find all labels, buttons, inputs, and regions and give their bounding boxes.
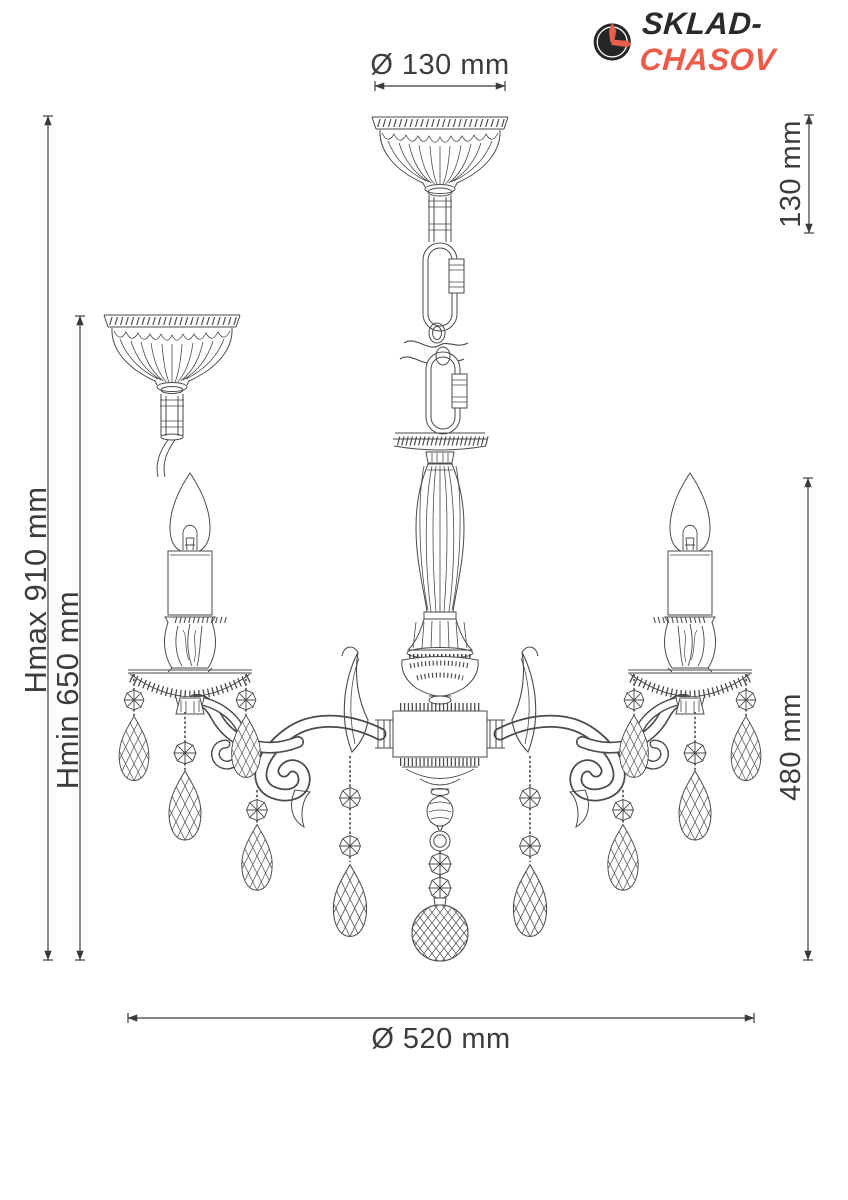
dimension-label-hmin: Hmin 650 mm — [50, 580, 86, 800]
dimension-label-fixture-height: 480 mm — [773, 672, 809, 822]
dim-canopy-diameter — [375, 81, 505, 91]
dimension-label-canopy-diameter: Ø 130 mm — [340, 48, 540, 82]
right-arm-assembly — [482, 473, 789, 939]
dimension-label-canopy-height: 130 mm — [774, 99, 808, 249]
main-canopy — [372, 117, 508, 242]
dimension-label-fixture-diameter: Ø 520 mm — [341, 1022, 541, 1056]
chandelier-technical-drawing — [0, 0, 848, 1200]
detached-canopy — [104, 315, 240, 477]
left-arm-assembly — [91, 473, 398, 939]
hanging-chain — [400, 243, 468, 434]
central-column — [375, 433, 505, 965]
dimension-label-hmax: Hmax 910 mm — [18, 475, 54, 705]
product-dimension-diagram: SKLAD-CHASOV — [0, 0, 848, 1200]
